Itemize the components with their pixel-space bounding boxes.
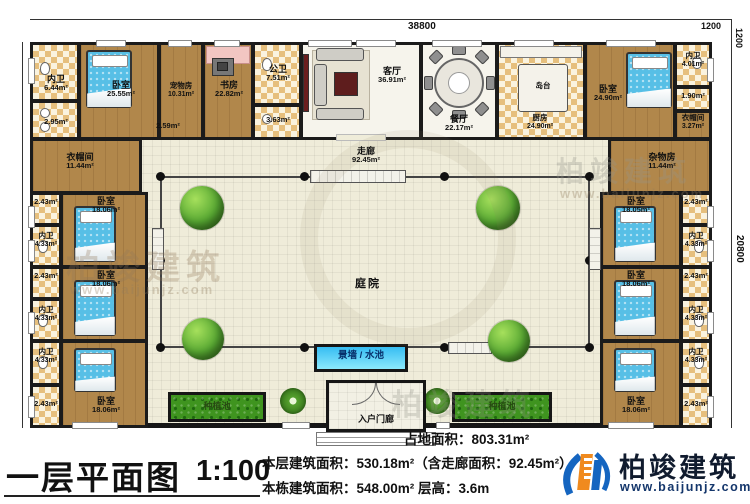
sink-icon xyxy=(40,122,50,132)
window xyxy=(606,40,656,47)
bench xyxy=(448,342,492,354)
window xyxy=(308,40,352,47)
dining-table-center xyxy=(448,72,470,94)
window xyxy=(214,40,240,47)
window xyxy=(707,58,714,82)
company-logo-site: www.baijunjz.com xyxy=(620,480,750,494)
toilet-icon xyxy=(38,356,48,369)
toilet-icon xyxy=(692,56,702,69)
toilet-icon xyxy=(40,62,50,75)
window xyxy=(707,312,714,334)
room-public-bath xyxy=(252,42,302,106)
tv-cabinet xyxy=(303,54,309,112)
toilet-icon xyxy=(38,240,48,253)
water-feature xyxy=(314,344,408,372)
floor-area-text: 本层建筑面积：530.18m²（含走廊面积：92.45m²） xyxy=(262,452,573,472)
window xyxy=(28,396,35,418)
window xyxy=(608,422,654,429)
dimension-line-left xyxy=(22,42,23,428)
floor-plan-page: 38800 1200 1200 20800 xyxy=(0,0,750,504)
chair xyxy=(452,110,466,119)
window xyxy=(28,58,35,84)
room-shower-topleft xyxy=(30,100,80,140)
chair xyxy=(452,46,466,55)
dimension-height-label: 20800 xyxy=(734,235,745,263)
column-dot xyxy=(156,172,165,181)
window xyxy=(168,40,192,47)
bench xyxy=(152,228,164,270)
room-public-bath2 xyxy=(252,104,302,140)
bed xyxy=(614,206,656,262)
window xyxy=(514,40,554,47)
coffee-table xyxy=(334,72,358,96)
window xyxy=(28,312,35,334)
window xyxy=(707,206,714,228)
room-storage-right xyxy=(608,138,712,194)
tree xyxy=(488,320,530,362)
room-inner-bath-topleft xyxy=(30,42,80,102)
bench xyxy=(589,228,601,270)
column-dot xyxy=(585,172,594,181)
palm-tree xyxy=(424,388,450,414)
window xyxy=(96,40,126,47)
sink-icon xyxy=(40,108,50,118)
window xyxy=(28,240,35,262)
column-dot xyxy=(156,343,165,352)
toilet-icon xyxy=(262,58,272,71)
computer-icon xyxy=(217,62,228,71)
land-area-text: 占地面积：803.31m² xyxy=(404,428,529,448)
window xyxy=(707,396,714,418)
planter-left xyxy=(168,392,266,422)
dimension-line-top-right xyxy=(700,19,731,20)
bed xyxy=(614,348,656,392)
sofa xyxy=(316,48,364,61)
chair xyxy=(424,76,433,90)
room-niche-r2 xyxy=(680,266,712,300)
tree xyxy=(180,186,224,230)
bed xyxy=(74,348,116,392)
bed xyxy=(626,52,672,108)
room-niche-l2 xyxy=(30,266,62,300)
palm-tree xyxy=(280,388,306,414)
window xyxy=(432,40,482,47)
planter-right xyxy=(452,392,552,422)
sofa xyxy=(316,108,364,120)
dimension-line-top xyxy=(30,19,700,20)
window xyxy=(72,422,118,429)
window xyxy=(356,40,396,47)
dimension-width-label: 38800 xyxy=(408,21,436,32)
room-pet xyxy=(158,42,204,140)
column-dot xyxy=(300,172,309,181)
column-dot xyxy=(300,343,309,352)
watermark-logo-ring xyxy=(300,130,516,346)
bed xyxy=(86,50,132,108)
room-closet-left xyxy=(30,138,142,194)
room-closet-topright xyxy=(674,110,712,140)
plan-scale: 1:100 xyxy=(196,455,270,488)
kitchen-island xyxy=(518,64,568,112)
window xyxy=(707,240,714,262)
plan-title: 一层平面图 xyxy=(6,451,181,499)
window xyxy=(282,422,310,429)
title-underline xyxy=(4,495,260,497)
bed xyxy=(614,280,656,336)
kitchen-counter xyxy=(500,46,582,58)
toilet-icon xyxy=(694,314,704,327)
dimension-line-right xyxy=(731,19,732,428)
company-logo-icon xyxy=(560,444,616,500)
chair xyxy=(486,76,495,90)
column-dot xyxy=(585,343,594,352)
sink-icon xyxy=(262,114,272,124)
dimension-offset-v-label: 1200 xyxy=(734,28,744,48)
tree xyxy=(182,318,224,360)
room-shower-topright xyxy=(674,86,712,112)
dimension-offset-h-label: 1200 xyxy=(701,21,721,31)
toilet-icon xyxy=(694,356,704,369)
building-area-text: 本栋建筑面积：548.00m² 层高：3.6m xyxy=(262,477,489,497)
bed xyxy=(74,280,116,336)
window xyxy=(28,206,35,228)
sofa xyxy=(314,64,327,106)
toilet-icon xyxy=(38,314,48,327)
toilet-icon xyxy=(694,240,704,253)
bed xyxy=(74,206,116,262)
